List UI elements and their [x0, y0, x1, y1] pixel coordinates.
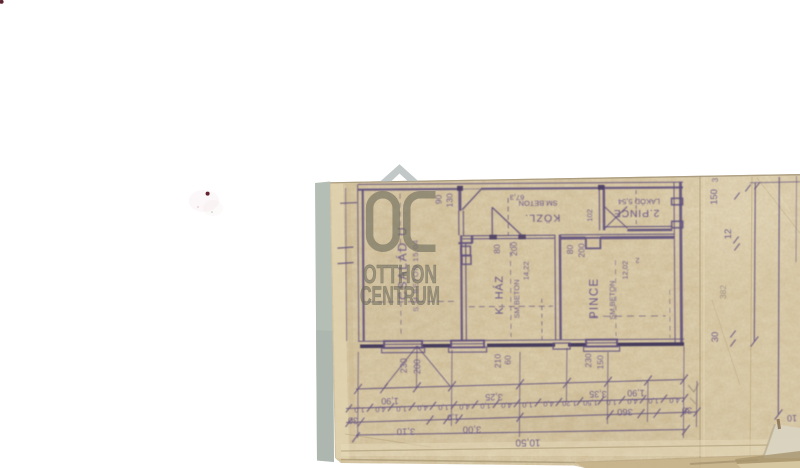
- svg-text:2: 2: [635, 256, 639, 263]
- svg-text:SM.BETON: SM.BETON: [512, 279, 521, 318]
- svg-text:150: 150: [709, 189, 720, 205]
- svg-text:1,0: 1,0: [606, 398, 616, 407]
- svg-text:SM.BETON: SM.BETON: [608, 281, 617, 320]
- svg-text:10: 10: [787, 413, 797, 423]
- svg-text:1,90: 1,90: [627, 388, 645, 398]
- svg-text:4,0: 4,0: [669, 396, 679, 405]
- svg-text:4,0: 4,0: [501, 401, 511, 410]
- svg-text:1,20: 1,20: [562, 399, 577, 408]
- svg-text:LAKÓD 5,54: LAKÓD 5,54: [618, 197, 660, 206]
- svg-text:3,35: 3,35: [589, 389, 607, 399]
- svg-text:3: 3: [711, 177, 720, 182]
- svg-text:10,50: 10,50: [515, 437, 540, 448]
- svg-text:67,3: 67,3: [510, 193, 525, 202]
- svg-text:1,0: 1,0: [447, 412, 459, 422]
- svg-text:1,0: 1,0: [522, 400, 532, 409]
- svg-text:230: 230: [399, 358, 409, 373]
- svg-text:4,0: 4,0: [459, 402, 469, 411]
- svg-text:4,0: 4,0: [417, 404, 427, 413]
- svg-text:1,50: 1,50: [583, 398, 598, 407]
- svg-text:30: 30: [710, 332, 721, 343]
- svg-text:1,0: 1,0: [354, 406, 364, 415]
- svg-text:2.PINCE: 2.PINCE: [613, 207, 660, 219]
- svg-text:1,90: 1,90: [381, 396, 399, 406]
- svg-text:14,22: 14,22: [522, 261, 531, 280]
- svg-text:4,0: 4,0: [543, 400, 553, 409]
- svg-text:3,10: 3,10: [397, 426, 416, 437]
- svg-text:PINCE: PINCE: [589, 278, 601, 319]
- svg-text:KÖZL.: KÖZL.: [524, 212, 560, 224]
- svg-text:1,0: 1,0: [438, 403, 448, 412]
- svg-text:360: 360: [617, 406, 633, 417]
- svg-text:382: 382: [718, 285, 728, 299]
- svg-text:1,0: 1,0: [648, 396, 658, 405]
- svg-text:4,0: 4,0: [627, 397, 637, 406]
- svg-text:102: 102: [585, 209, 594, 222]
- svg-text:230: 230: [583, 353, 593, 368]
- svg-text:60: 60: [503, 355, 513, 365]
- svg-text:12,02: 12,02: [621, 261, 630, 280]
- svg-text:1,0: 1,0: [480, 402, 490, 411]
- svg-text:200: 200: [576, 243, 586, 258]
- svg-text:200: 200: [509, 242, 519, 257]
- svg-text:12: 12: [723, 229, 734, 240]
- svg-text:80: 80: [565, 245, 575, 255]
- svg-text:150: 150: [595, 355, 605, 370]
- svg-text:K. HÁZ: K. HÁZ: [493, 275, 506, 314]
- svg-text:3,25: 3,25: [485, 392, 503, 402]
- svg-text:4,0: 4,0: [375, 405, 385, 414]
- svg-text:CENTRUM: CENTRUM: [360, 281, 440, 311]
- svg-text:210: 210: [493, 354, 503, 369]
- svg-text:30: 30: [682, 405, 692, 415]
- svg-text:30: 30: [348, 415, 358, 425]
- svg-text:80: 80: [492, 244, 502, 254]
- svg-text:1,0: 1,0: [396, 404, 406, 413]
- svg-text:130: 130: [445, 193, 455, 208]
